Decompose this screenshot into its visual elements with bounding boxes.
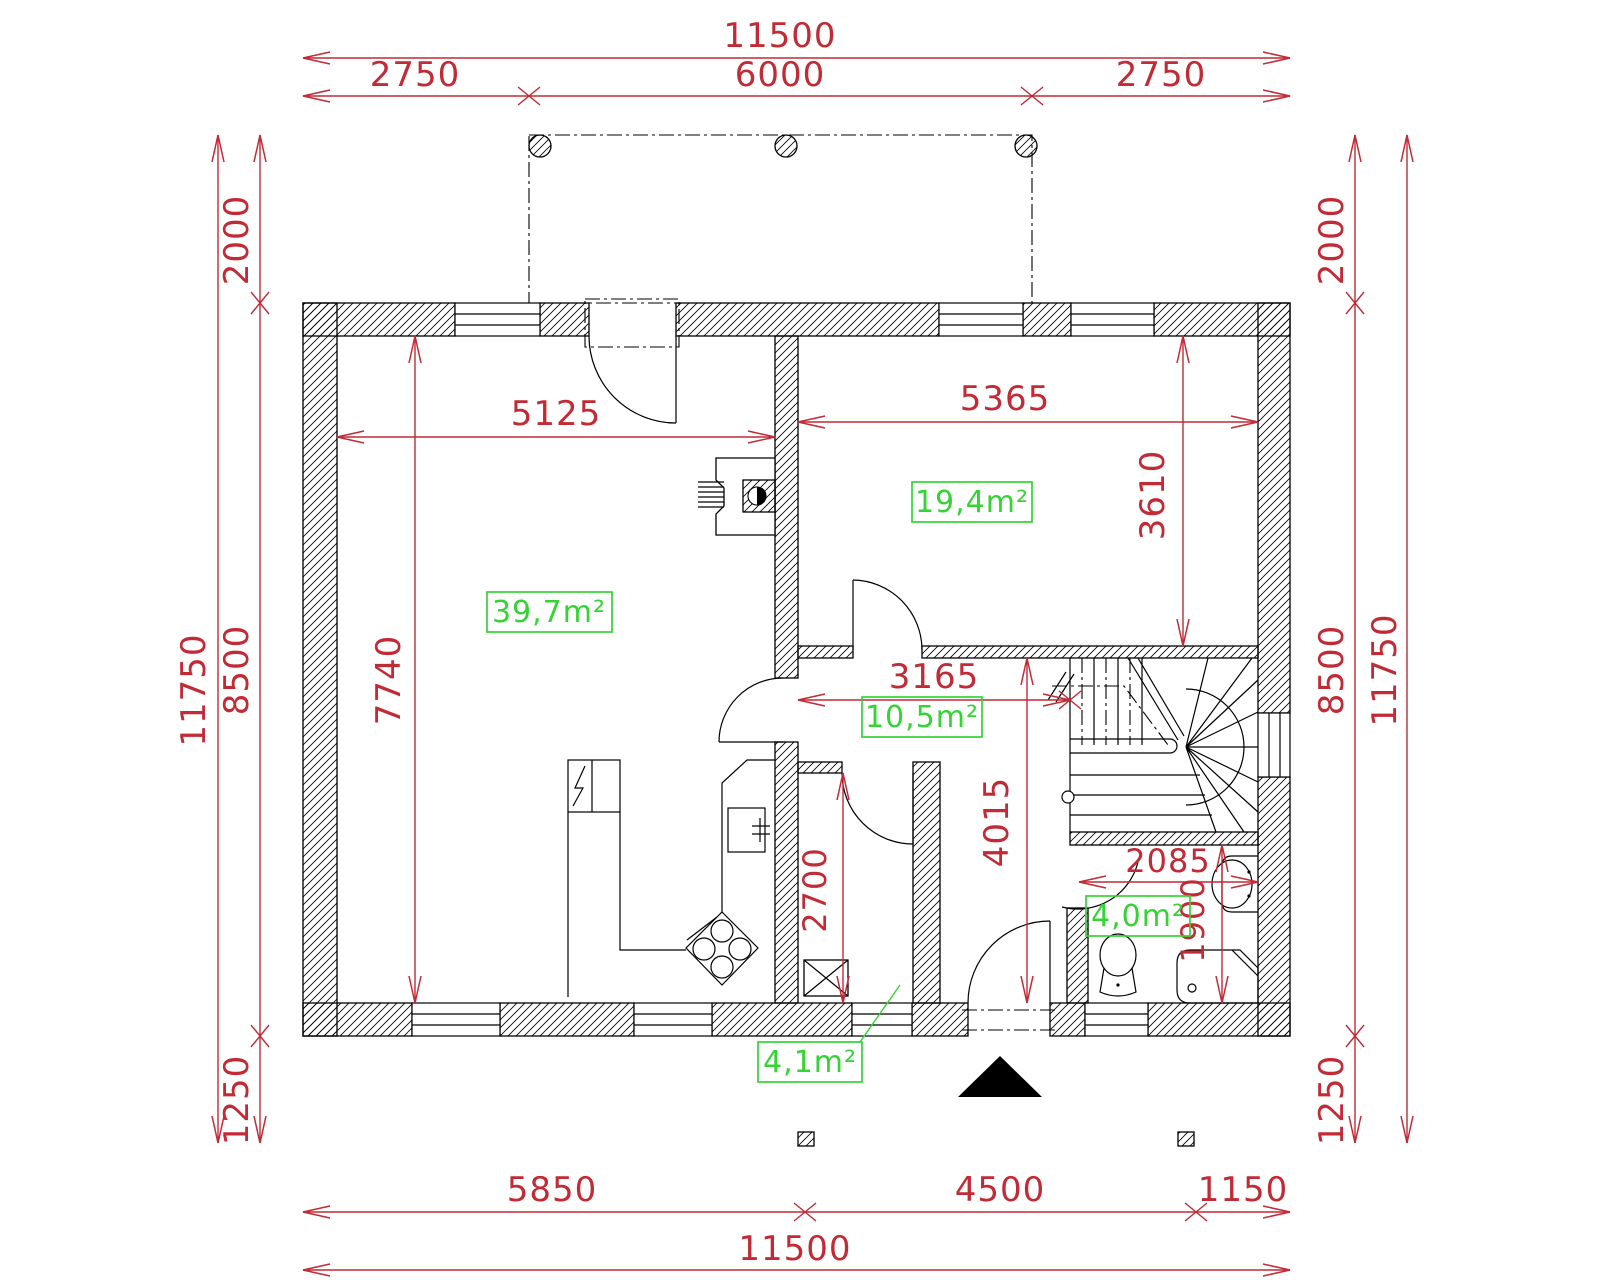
window-icon [1085,1003,1148,1036]
stair-newel-post [1062,791,1074,803]
toilet-icon [1100,934,1136,996]
floor-plan-canvas: 11500 2750 6000 2750 5850 4500 1150 1150… [0,0,1600,1280]
dim-bottom-overall: 11500 [738,1229,851,1269]
entrance-marker [958,1056,1042,1097]
kitchen-sink-icon [728,808,770,852]
washbasin-icon [1212,856,1258,912]
window-icon [1071,303,1154,336]
dim-bottom-left: 5850 [507,1170,598,1210]
dim-top-right: 2750 [1116,55,1207,95]
area-label-bath: 4,0m² [1091,899,1185,934]
dim-top-left: 2750 [370,55,461,95]
porch-column [1178,1132,1194,1146]
window-icon [939,303,1023,336]
area-label-pantry: 4,1m² [763,1045,857,1080]
dim-pantry-depth: 2700 [796,847,834,932]
dim-bath-width: 2085 [1125,842,1210,880]
fireplace-icon [698,458,775,535]
dim-left-overall: 11750 [174,633,214,746]
dim-bottom-center: 4500 [955,1170,1046,1210]
dim-left-terrace: 2000 [217,195,257,286]
terrace-column [775,135,797,157]
terrace-column [529,135,551,157]
area-label-hall: 10,5m² [865,700,979,735]
floor-plan: 11500 2750 6000 2750 5850 4500 1150 1150… [0,0,1600,1280]
dim-left-house: 8500 [217,625,257,716]
area-label-living: 39,7m² [492,595,606,630]
window-icon [412,1003,500,1036]
terrace-door-threshold [585,299,679,347]
window-icon [1258,713,1290,777]
room-door-icon [853,580,922,650]
pantry-door-icon [842,773,913,844]
terrace-door-icon [589,336,676,423]
dim-living-width: 5125 [511,394,602,434]
dim-room-width: 5365 [960,379,1051,419]
dim-hall-width: 3165 [889,657,980,697]
dim-top-center: 6000 [735,55,826,95]
stove-icon [686,912,758,985]
dim-hall-depth: 4015 [977,777,1017,868]
living-hall-door-icon [719,678,783,742]
window-icon [455,303,540,336]
fridge-icon [568,760,620,812]
window-icon [852,1003,912,1036]
dim-living-depth: 7740 [369,635,409,726]
dim-left-porch: 1250 [217,1055,257,1146]
vent-shaft-icon [804,960,848,996]
porch-column [798,1132,814,1146]
dim-room-depth: 3610 [1133,450,1173,541]
dim-right-porch: 1250 [1312,1055,1352,1146]
staircase [1048,658,1258,832]
dim-right-terrace: 2000 [1312,195,1352,286]
doors [589,336,1138,1030]
stair-handrail [1070,739,1177,753]
entrance-door-icon [962,921,1056,1030]
dim-top-overall: 11500 [723,16,836,56]
terrace-column [1015,135,1037,157]
dim-bottom-right: 1150 [1198,1170,1289,1210]
area-label-room: 19,4m² [915,485,1029,520]
dim-right-overall: 11750 [1365,613,1405,726]
window-icon [634,1003,712,1036]
dim-right-house: 8500 [1312,625,1352,716]
